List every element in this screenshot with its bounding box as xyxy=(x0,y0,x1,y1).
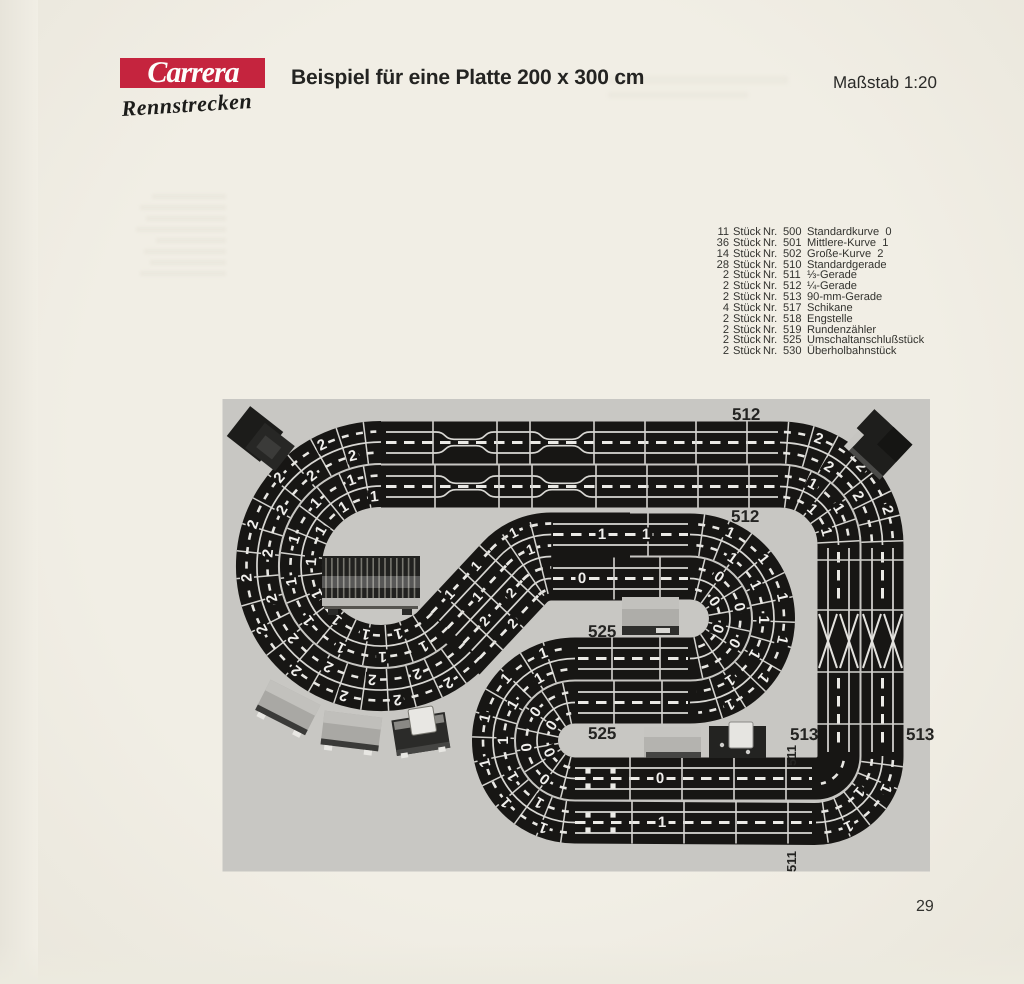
svg-text:513: 513 xyxy=(790,725,818,744)
svg-text:511: 511 xyxy=(784,851,799,872)
svg-text:1: 1 xyxy=(495,736,512,744)
svg-text:2: 2 xyxy=(259,548,277,558)
svg-text:512: 512 xyxy=(731,507,759,526)
svg-text:525: 525 xyxy=(588,622,616,641)
svg-text:0: 0 xyxy=(656,770,664,787)
svg-text:2: 2 xyxy=(367,670,377,688)
svg-text:1: 1 xyxy=(642,526,650,543)
svg-text:1: 1 xyxy=(378,648,387,665)
svg-text:2: 2 xyxy=(238,573,256,583)
svg-text:1: 1 xyxy=(369,488,379,506)
svg-text:511: 511 xyxy=(784,745,799,766)
svg-text:1: 1 xyxy=(303,557,321,567)
svg-text:1: 1 xyxy=(658,814,666,831)
svg-text:525: 525 xyxy=(588,724,616,743)
svg-text:1: 1 xyxy=(598,526,606,543)
svg-text:512: 512 xyxy=(732,405,760,424)
svg-text:513: 513 xyxy=(906,725,934,744)
svg-text:1: 1 xyxy=(755,615,772,624)
svg-text:0: 0 xyxy=(578,570,586,587)
